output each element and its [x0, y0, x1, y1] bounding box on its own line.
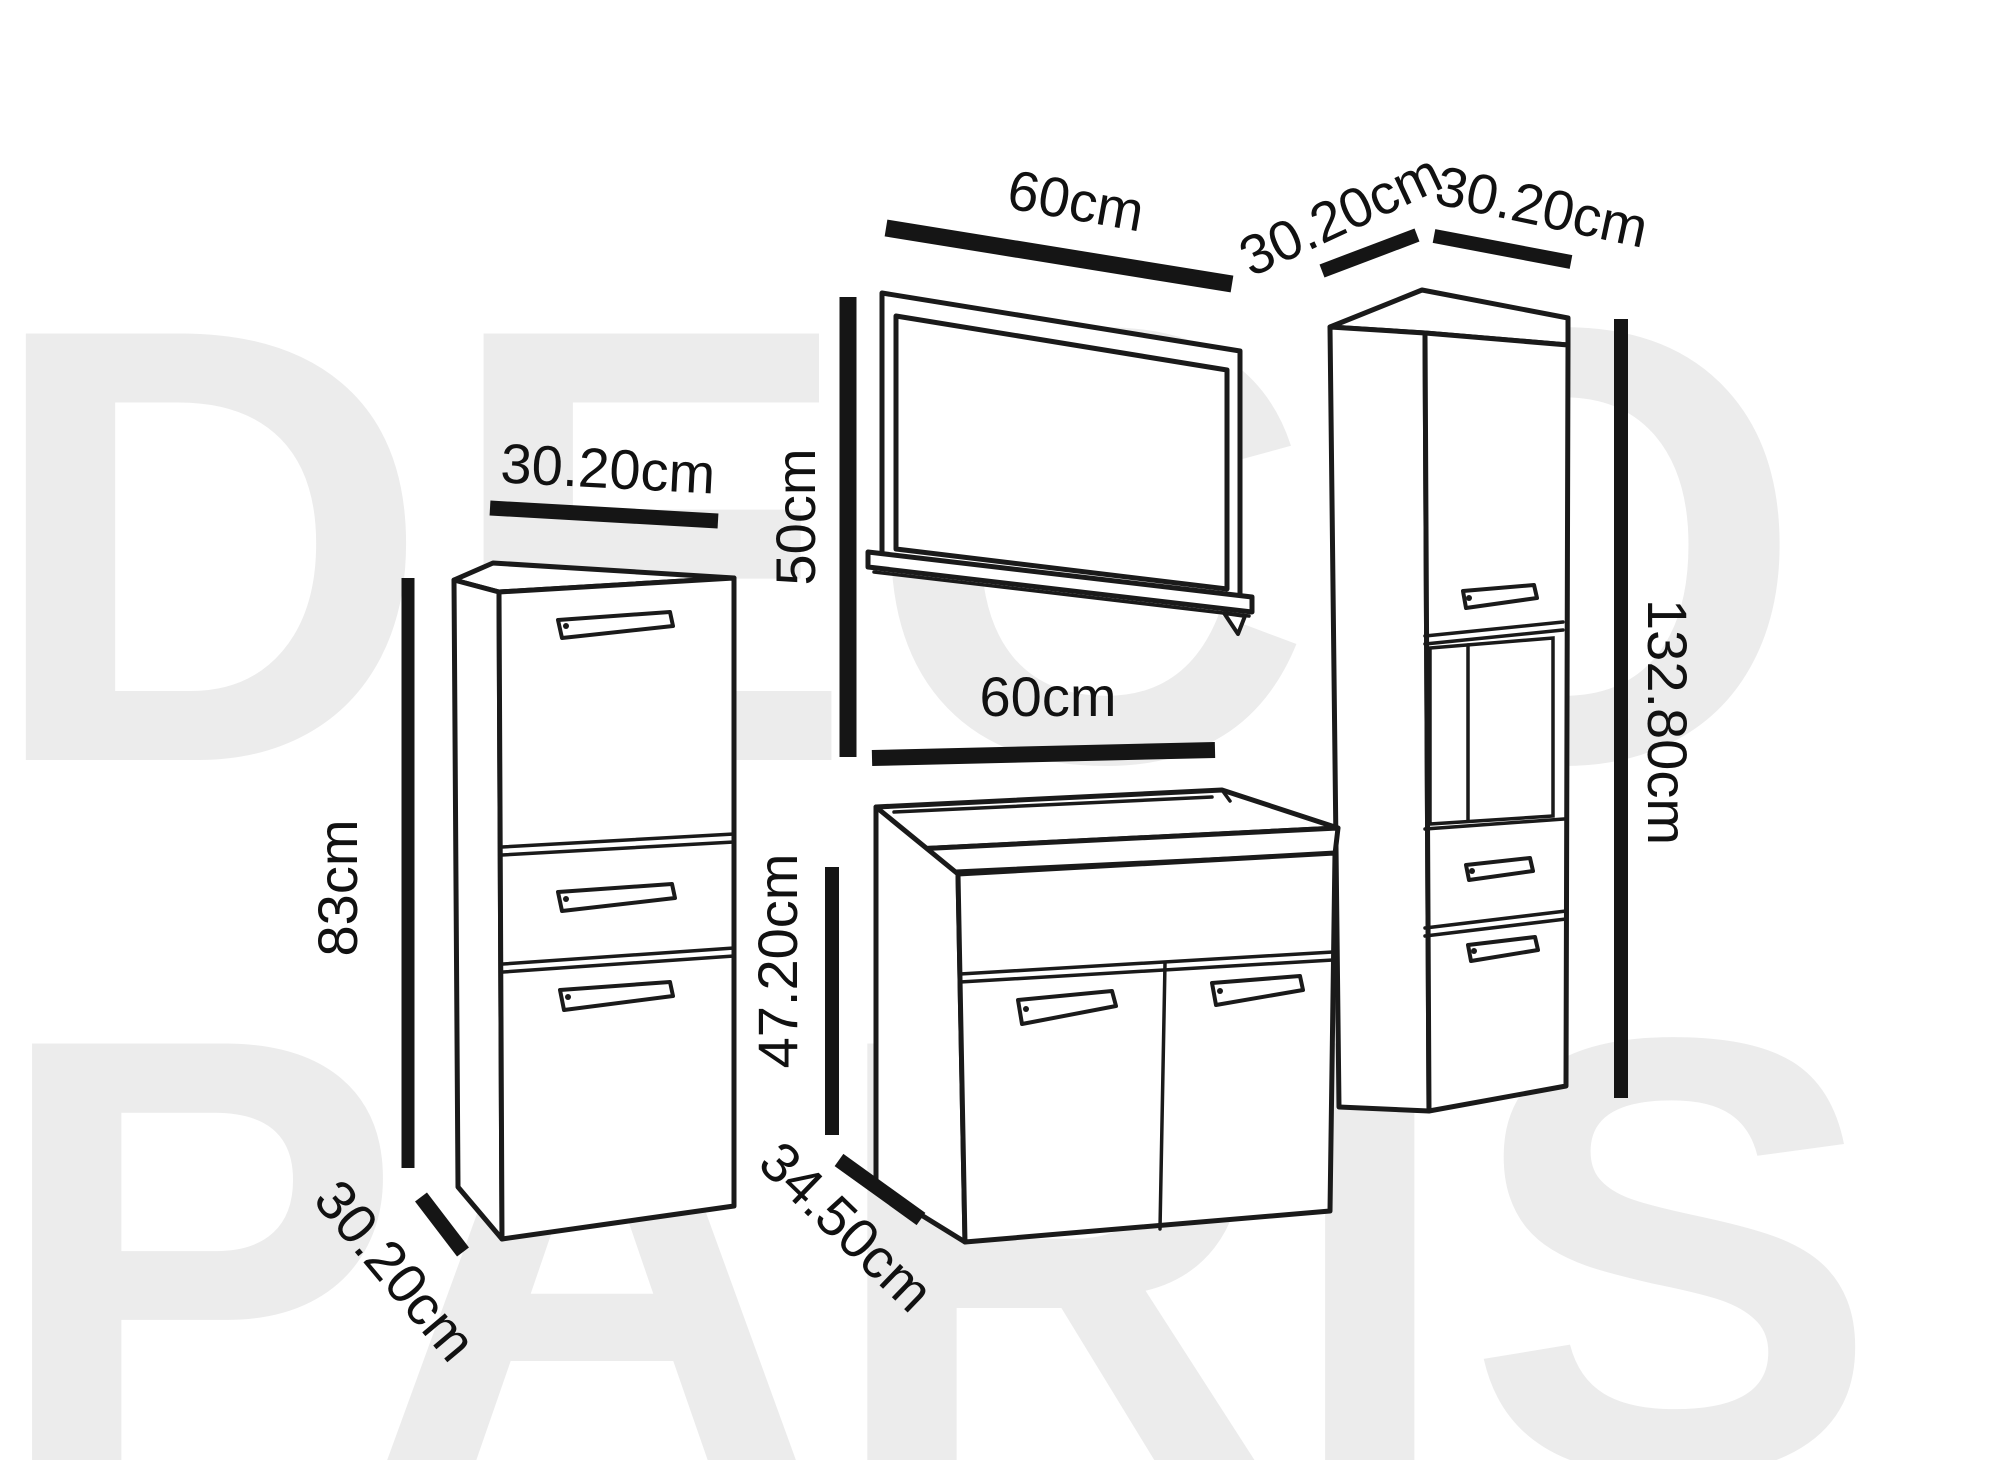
left-cabinet-front-face [499, 578, 734, 1239]
dimension-diagram-canvas: DECO PARIS [0, 0, 2000, 1460]
vanity-front-face [958, 853, 1335, 1242]
dim-label-vanity-width: 60cm [980, 665, 1117, 728]
dim-label-vanity-height: 47.20cm [746, 854, 809, 1069]
vanity-side-panel [876, 807, 965, 1242]
dim-label-mirror-height: 50cm [764, 449, 827, 586]
tall-cabinet-drawing [1330, 290, 1568, 1111]
dim-label-left-cabinet-height: 83cm [306, 820, 369, 957]
tall-cabinet-front-face [1425, 333, 1568, 1111]
left-cabinet-side-panel [454, 580, 502, 1239]
vanity-drawing [876, 790, 1338, 1242]
tall-cabinet-side-panel [1330, 327, 1429, 1111]
dim-bar-vanity-width [872, 750, 1215, 758]
dim-label-left-cabinet-width: 30.20cm [499, 431, 717, 505]
dim-label-tall-cabinet-height: 132.80cm [1636, 599, 1699, 845]
bathroom-furniture-dimension-diagram: DECO PARIS [0, 0, 2000, 1460]
left-cabinet-drawing [454, 563, 734, 1239]
